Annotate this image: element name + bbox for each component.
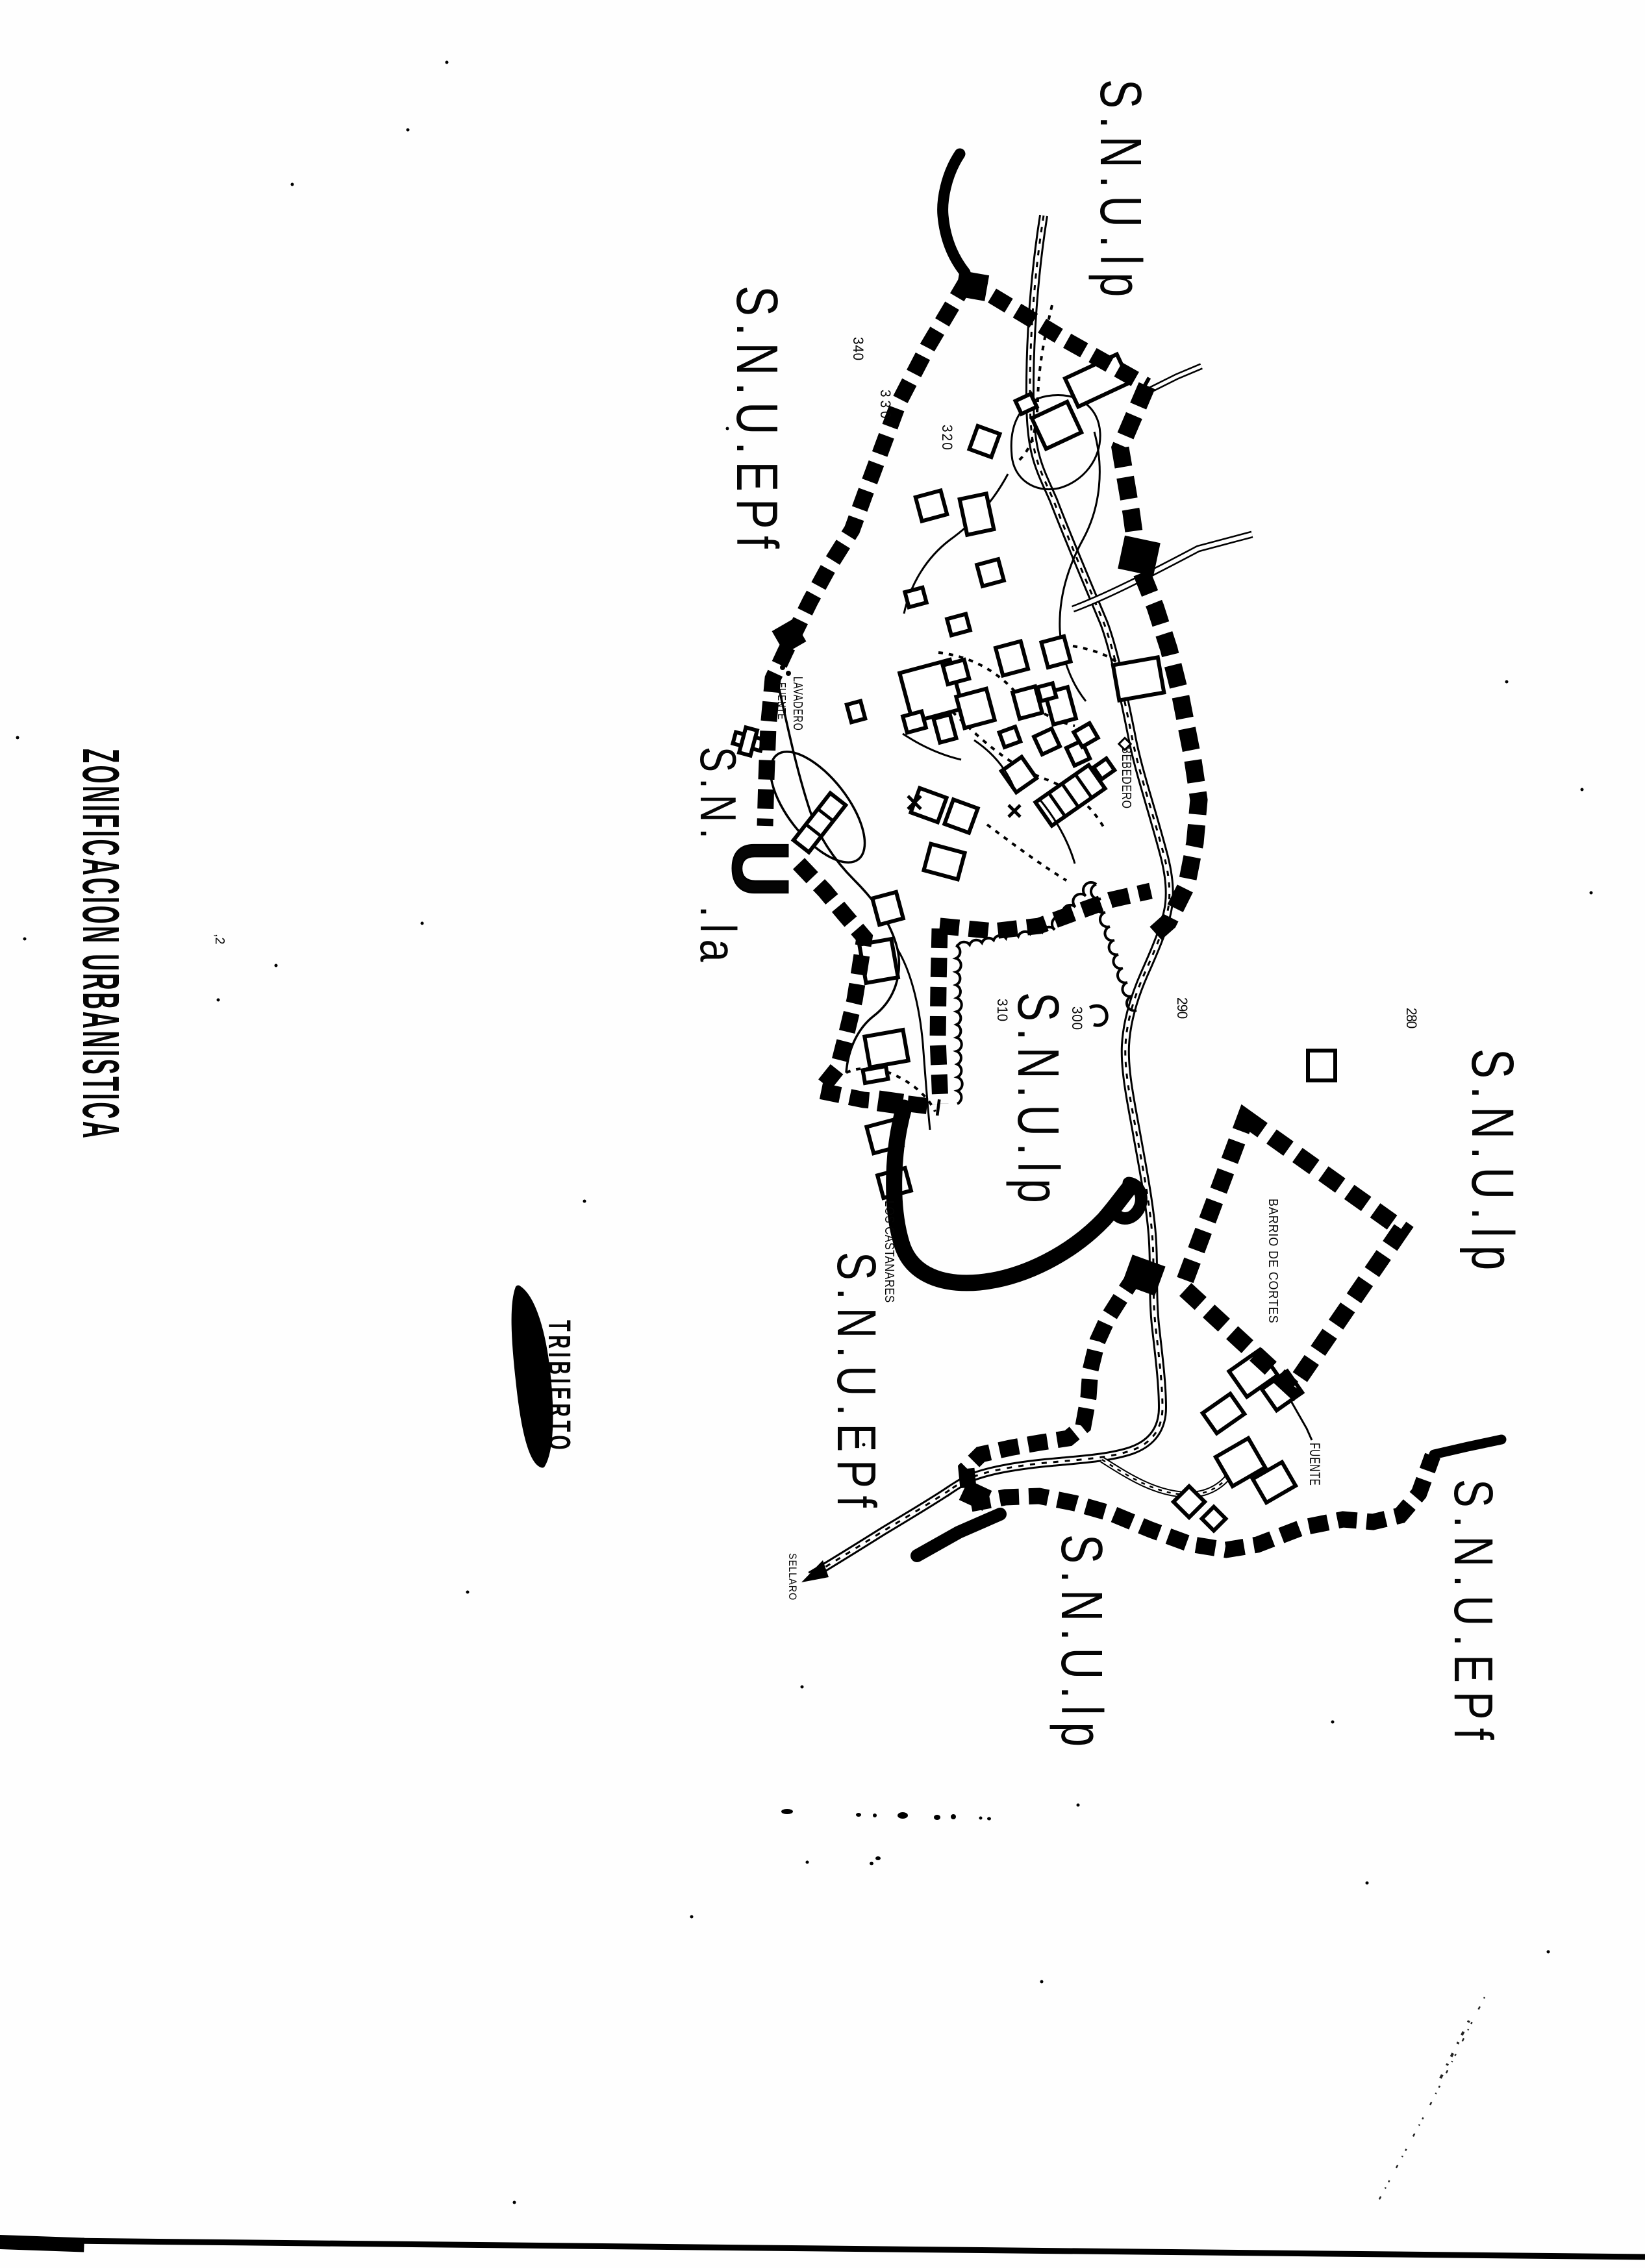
svg-text:LAVADERO: LAVADERO — [790, 677, 805, 730]
svg-text:S.N.U.EPf: S.N.U.EPf — [1443, 1479, 1504, 1741]
svg-text:S.N.U.EPf: S.N.U.EPf — [724, 286, 789, 549]
svg-text:FUENTE: FUENTE — [775, 682, 787, 719]
svg-text:,2: ,2 — [212, 934, 227, 945]
svg-text:320: 320 — [939, 425, 955, 450]
svg-text:LOS CASTANARES: LOS CASTANARES — [883, 1201, 898, 1302]
svg-text:FUENTE: FUENTE — [1306, 1443, 1322, 1486]
svg-text:BARRIO DE CORTES: BARRIO DE CORTES — [1266, 1199, 1280, 1323]
svg-text:310: 310 — [994, 999, 1011, 1021]
svg-text:290: 290 — [1174, 997, 1190, 1019]
svg-text:SELLARO: SELLARO — [786, 1553, 798, 1600]
svg-text:BEBEDERO: BEBEDERO — [1120, 747, 1135, 808]
svg-text:340: 340 — [850, 337, 866, 360]
svg-text:300: 300 — [1069, 1006, 1085, 1030]
svg-text:U: U — [716, 840, 805, 897]
svg-text:S.N.U.EPf: S.N.U.EPf — [826, 1252, 887, 1508]
svg-text:280: 280 — [1403, 1008, 1420, 1028]
svg-text:330: 330 — [877, 390, 894, 419]
